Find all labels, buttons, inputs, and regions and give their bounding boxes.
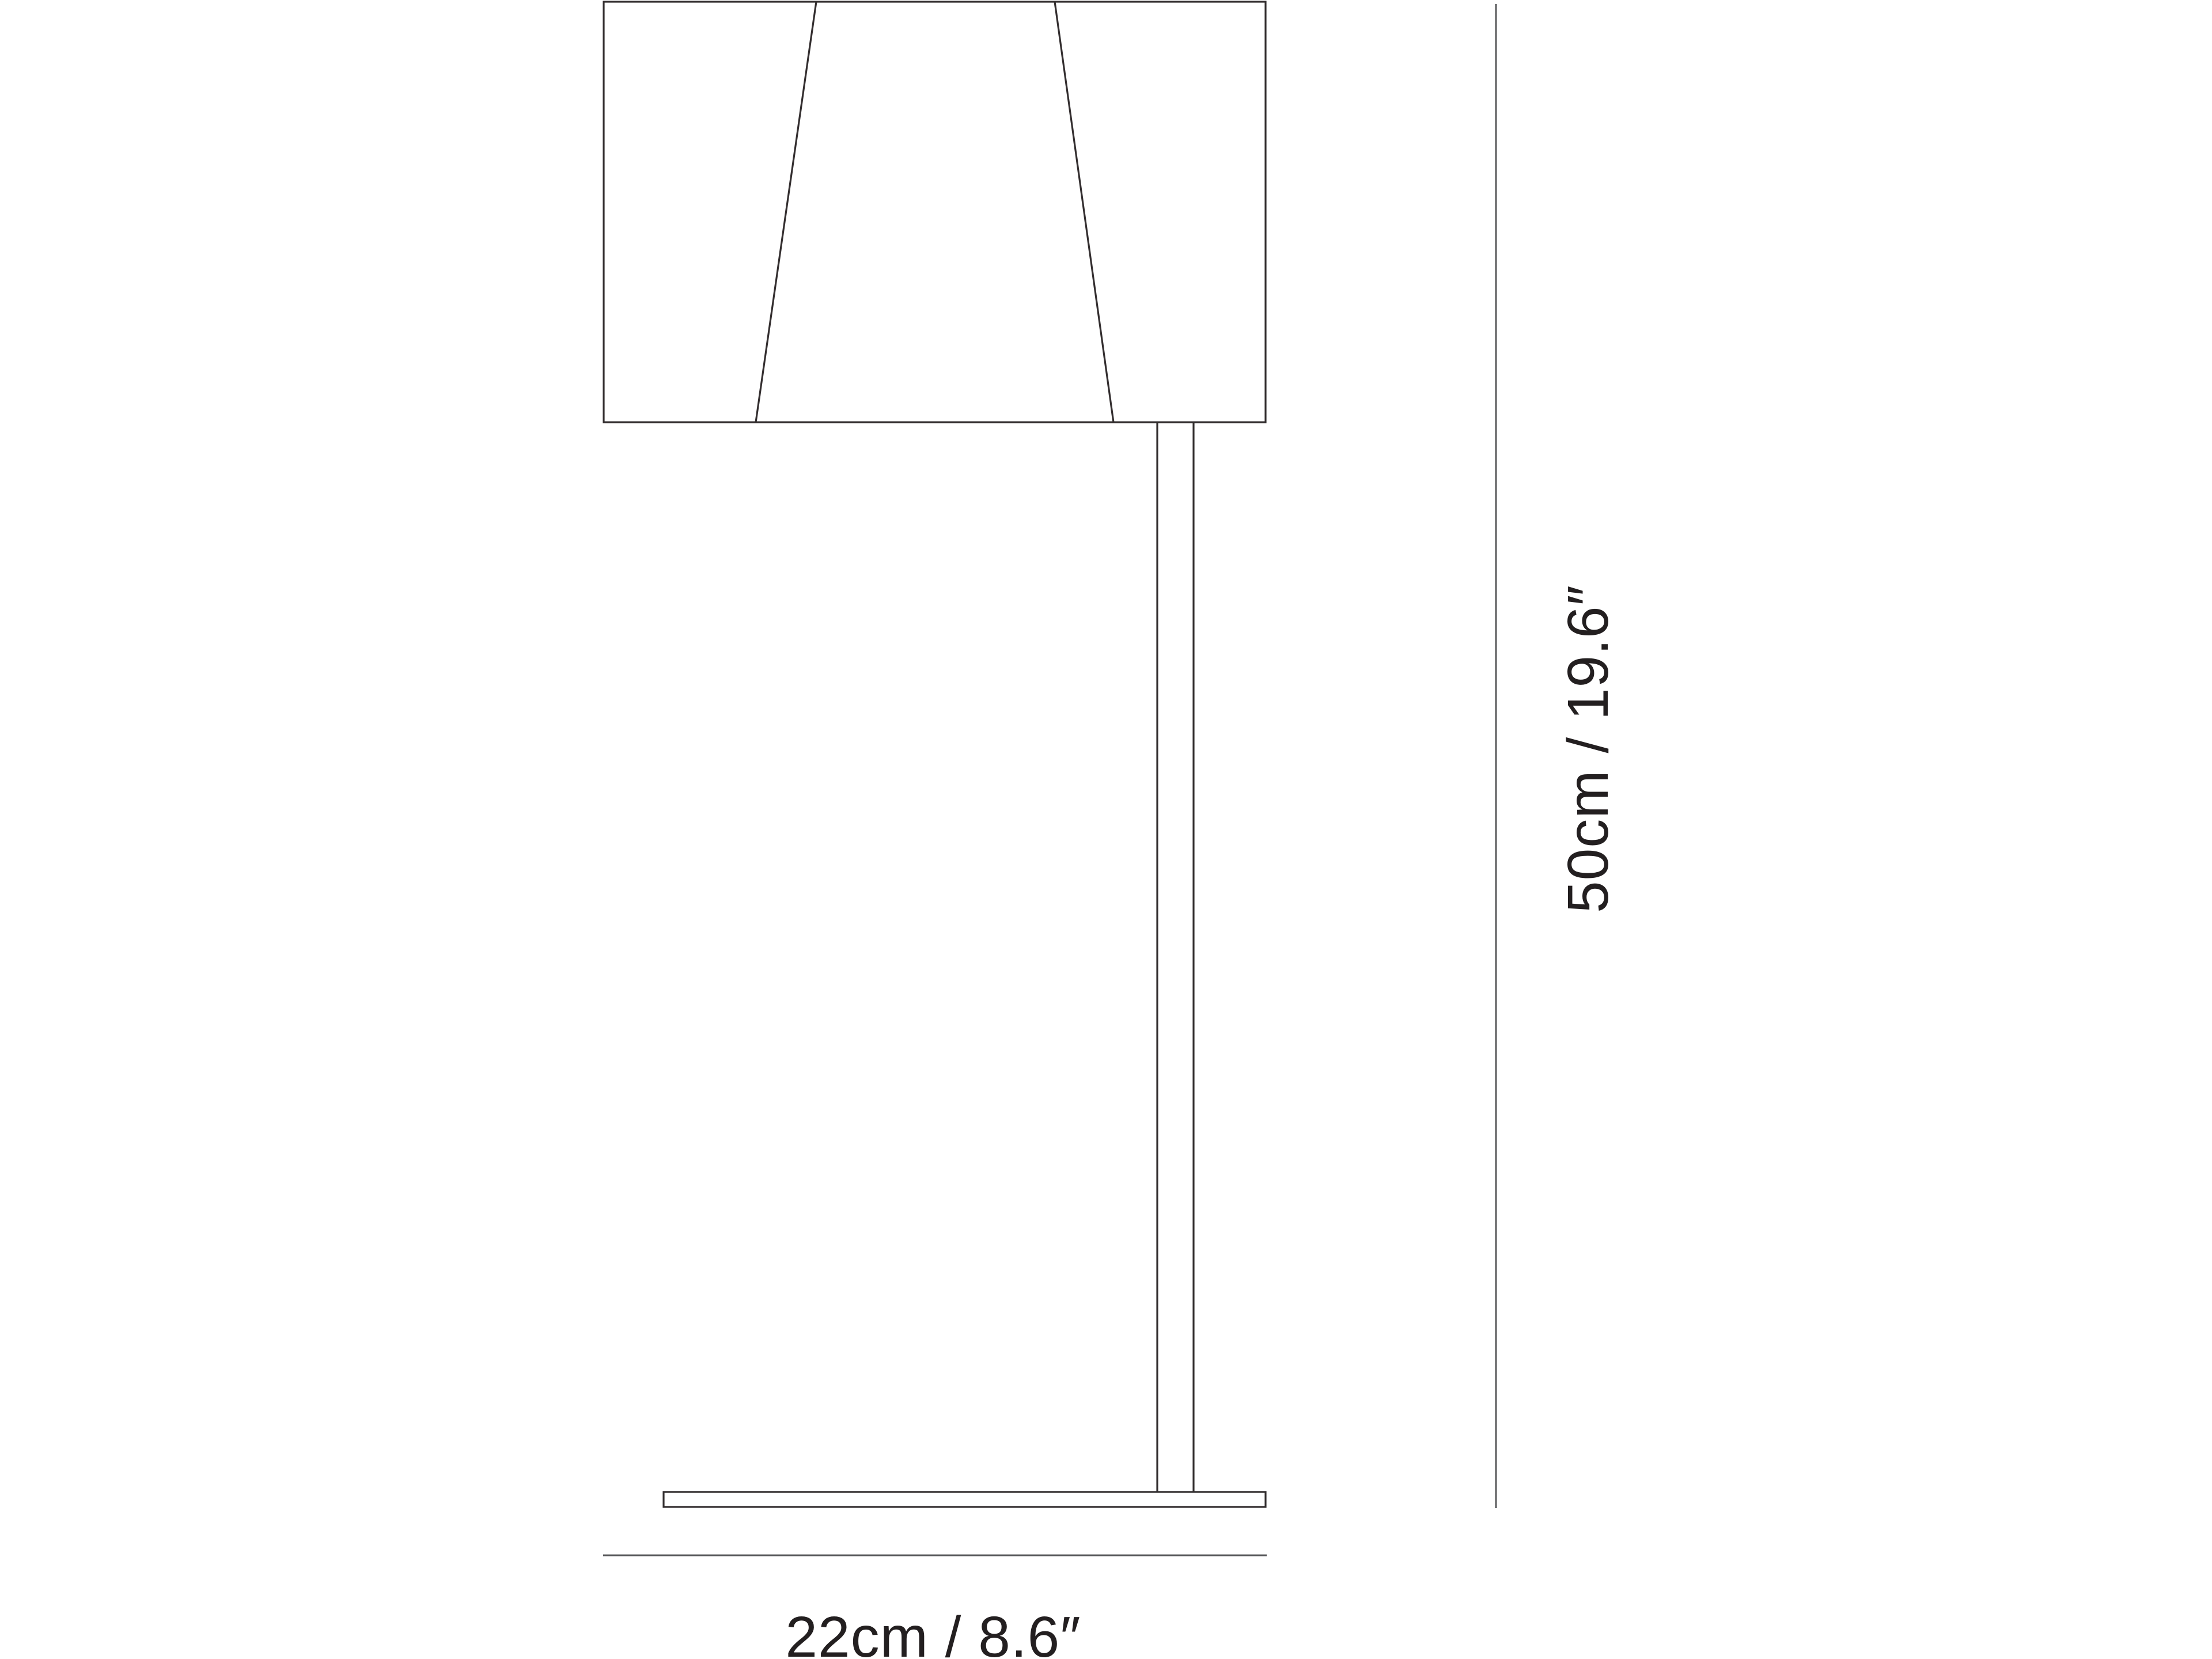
- lamp-shade-outline: [604, 2, 1266, 422]
- shade-seam-right: [1055, 2, 1113, 422]
- lamp-base-outline: [664, 1492, 1266, 1507]
- shade-seam-left: [756, 2, 816, 422]
- lamp-line-drawing: [0, 0, 2212, 1659]
- diagram-canvas: 50cm / 19.6″ 22cm / 8.6″: [0, 0, 2212, 1659]
- width-dimension-label: 22cm / 8.6″: [785, 1608, 1081, 1659]
- height-dimension-label: 50cm / 19.6″: [1559, 585, 1617, 913]
